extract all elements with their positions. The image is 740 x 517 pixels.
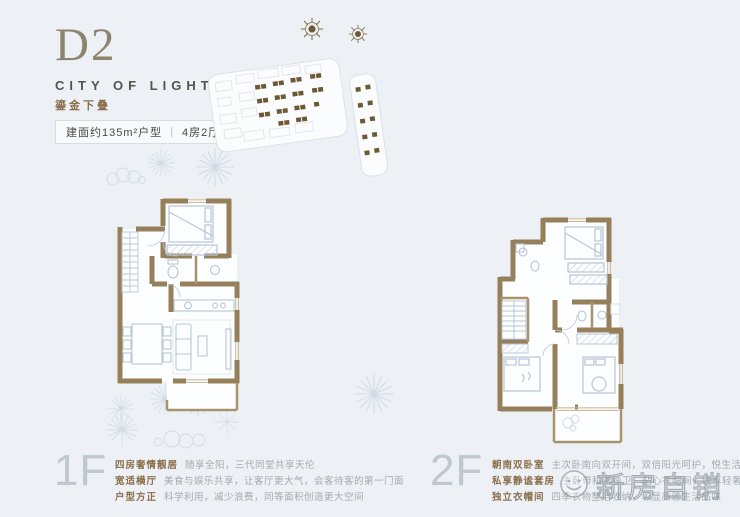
feature-row: 户型方正科学利用，减少浪费，同等面积创造更大空间 xyxy=(115,490,404,506)
product-tag: 鎏金下叠 xyxy=(55,97,214,113)
feature-title: 私享静谧套房 xyxy=(492,476,555,487)
feature-desc: 科学利用，减少浪费，同等面积创造更大空间 xyxy=(164,492,364,503)
tree-decor xyxy=(352,372,396,416)
feature-title: 朝南双卧室 xyxy=(492,460,545,471)
unit-code: D2 xyxy=(55,22,214,69)
floor-label-2f: 2F xyxy=(430,446,483,496)
floorplan-1f xyxy=(72,146,242,458)
features-1f: 四房奢情靓居随享全阳，三代同堂共享天伦 宽适横厅美食与娱乐共享，让客厅更大气，会… xyxy=(115,458,404,506)
feature-title: 户型方正 xyxy=(115,492,157,503)
smiley-logo-icon xyxy=(556,467,592,503)
site-plan xyxy=(204,51,355,162)
floor-label-1f: 1F xyxy=(54,446,107,496)
badge-divider: | xyxy=(170,126,174,138)
site-plan-strip xyxy=(345,70,394,184)
feature-title: 宽适横厅 xyxy=(115,476,157,487)
watermark-text: 新房自销 xyxy=(596,464,724,506)
compass-icon xyxy=(348,24,368,44)
feature-row: 宽适横厅美食与娱乐共享，让客厅更大气，会客待客的第一门面 xyxy=(115,474,404,490)
project-name: CITY OF LIGHT xyxy=(55,78,214,93)
watermark: 新房自销 xyxy=(556,464,724,506)
feature-title: 独立衣帽间 xyxy=(492,492,545,503)
feature-desc: 美食与娱乐共享，让客厅更大气，会客待客的第一门面 xyxy=(164,476,404,487)
feature-desc: 随享全阳，三代同堂共享天伦 xyxy=(185,460,315,471)
page-canvas: D2 CITY OF LIGHT 鎏金下叠 建面约135m²户型 | 4房2厅3… xyxy=(0,0,740,517)
floorplan-2f xyxy=(482,202,632,447)
feature-row: 四房奢情靓居随享全阳，三代同堂共享天伦 xyxy=(115,458,404,474)
feature-title: 四房奢情靓居 xyxy=(115,460,178,471)
header-block: D2 CITY OF LIGHT 鎏金下叠 xyxy=(55,22,214,113)
compass-icon xyxy=(300,17,324,41)
area-label: 建面约135m²户型 xyxy=(66,124,162,140)
